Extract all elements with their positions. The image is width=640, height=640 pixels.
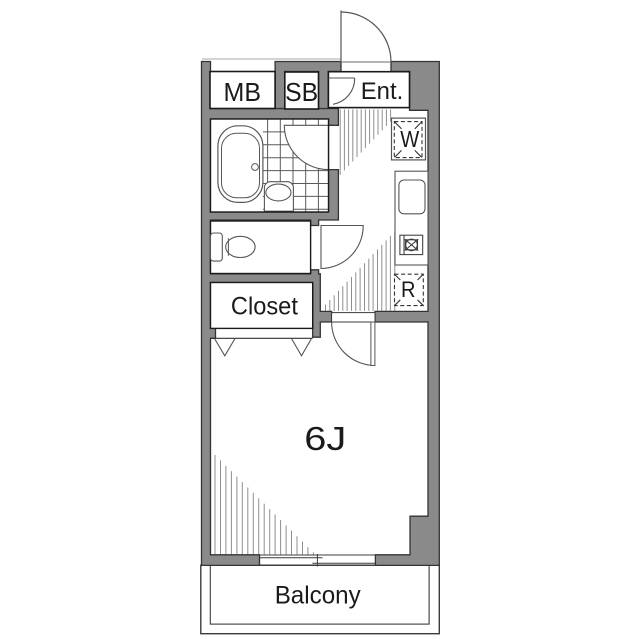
svg-text:6J: 6J — [304, 421, 346, 458]
svg-text:Closet: Closet — [231, 292, 298, 320]
svg-text:Balcony: Balcony — [275, 582, 361, 610]
svg-text:R: R — [401, 277, 416, 302]
svg-text:Ent.: Ent. — [361, 78, 404, 105]
svg-text:SB: SB — [285, 79, 318, 107]
svg-text:MB: MB — [224, 79, 262, 107]
svg-text:W: W — [400, 126, 420, 152]
